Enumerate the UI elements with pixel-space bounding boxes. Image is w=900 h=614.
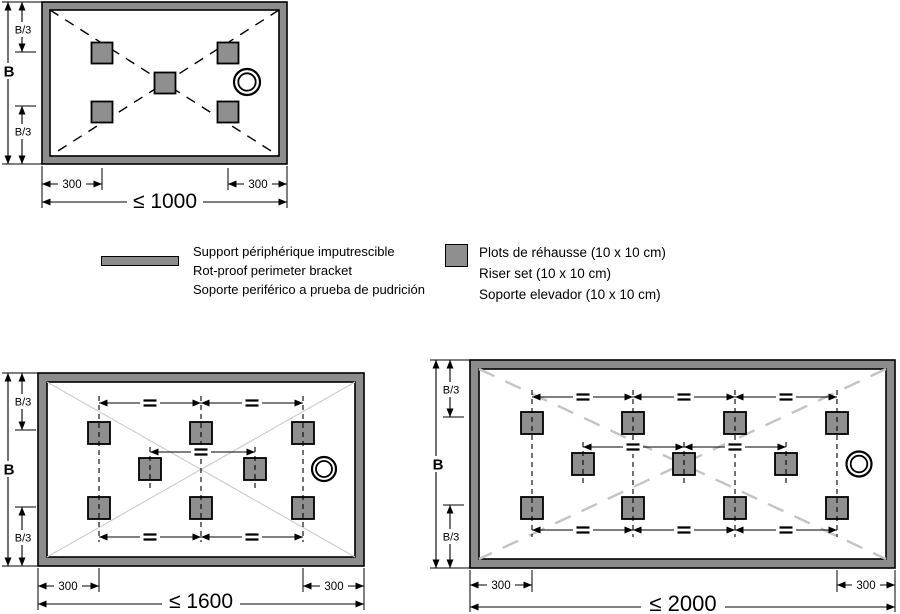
b3-label: B/3 — [15, 25, 32, 37]
riser-plot — [92, 43, 113, 64]
legend-line-es: Soporte elevador (10 x 10 cm) — [479, 284, 666, 305]
perimeter-bracket-swatch — [101, 256, 179, 266]
b-label: B — [4, 64, 15, 81]
legend-line-en: Riser set (10 x 10 cm) — [479, 263, 666, 284]
edge-offset-label: 300 — [58, 581, 77, 593]
equal-spacing-arrows-bottom — [532, 523, 837, 537]
equal-spacing-arrows-top — [532, 390, 837, 404]
drain-outlet — [234, 69, 260, 95]
riser-set-legend: Plots de réhausse (10 x 10 cm) Riser set… — [479, 242, 666, 305]
max-length-label: ≤ 1600 — [169, 590, 233, 613]
riser-plot — [92, 102, 113, 123]
max-length-label: ≤ 2000 — [649, 591, 716, 614]
dimension-bottom: 300 300 ≤ 2000 — [470, 570, 895, 614]
tray-plan-1600: B/3 B/3 B 300 300 ≤ 1600 — [0, 350, 400, 614]
dimension-left: B/3 B/3 B — [1, 373, 38, 566]
perimeter-bracket-legend: Support périphérique imputrescible Rot-p… — [193, 242, 425, 299]
drain-outlet — [312, 457, 336, 481]
edge-offset-label: 300 — [62, 179, 81, 191]
dimension-left: B/3 B/3 B — [430, 360, 470, 568]
dimension-left: B/3 B/3 B — [1, 2, 42, 164]
b3-label: B/3 — [443, 532, 460, 544]
b3-label: B/3 — [15, 127, 32, 139]
edge-offset-label: 300 — [248, 179, 267, 191]
legend-line-fr: Support périphérique imputrescible — [193, 242, 425, 261]
riser-plot — [155, 73, 176, 94]
b-label: B — [4, 462, 15, 479]
drain-outlet — [847, 452, 872, 477]
edge-offset-label: 300 — [324, 581, 343, 593]
legend-line-fr: Plots de réhausse (10 x 10 cm) — [479, 242, 666, 263]
installation-drawing: B/3 B/3 B 300 300 ≤ 1000 Support périphé… — [0, 0, 900, 614]
b3-label: B/3 — [443, 385, 460, 397]
b3-label: B/3 — [15, 397, 32, 409]
b-label: B — [433, 457, 444, 474]
dimension-bottom: 300 300 ≤ 1600 — [38, 568, 364, 613]
legend-line-es: Soporte periférico a prueba de pudrición — [193, 280, 425, 299]
legend-line-en: Rot-proof perimeter bracket — [193, 261, 425, 280]
edge-offset-label: 300 — [491, 580, 510, 592]
tray-plan-2000: B/3 B/3 B 300 300 ≤ 2000 — [430, 350, 900, 614]
riser-plot — [218, 43, 239, 64]
riser-set-swatch — [445, 244, 468, 267]
riser-plot — [218, 102, 239, 123]
max-length-label: ≤ 1000 — [133, 190, 197, 213]
tray-plan-1000: B/3 B/3 B 300 300 ≤ 1000 — [0, 0, 300, 215]
dimension-bottom: 300 300 ≤ 1000 — [42, 166, 287, 213]
b3-label: B/3 — [15, 533, 32, 545]
edge-offset-label: 300 — [856, 580, 875, 592]
